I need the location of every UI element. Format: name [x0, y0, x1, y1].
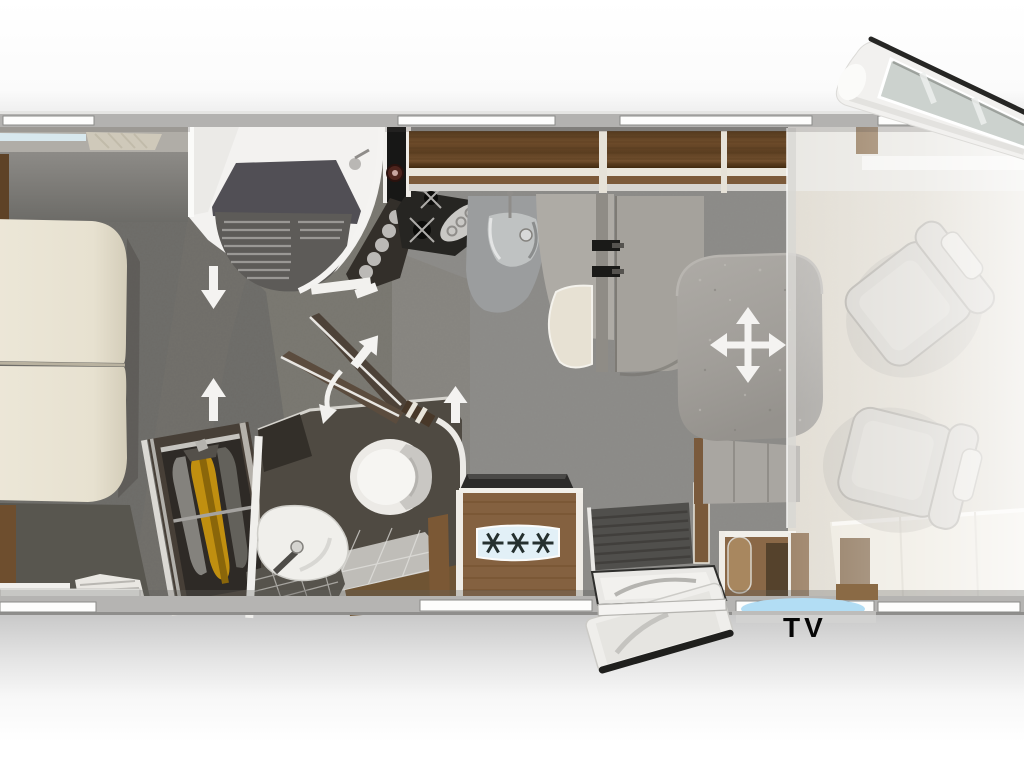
svg-text:TV: TV [783, 612, 827, 643]
